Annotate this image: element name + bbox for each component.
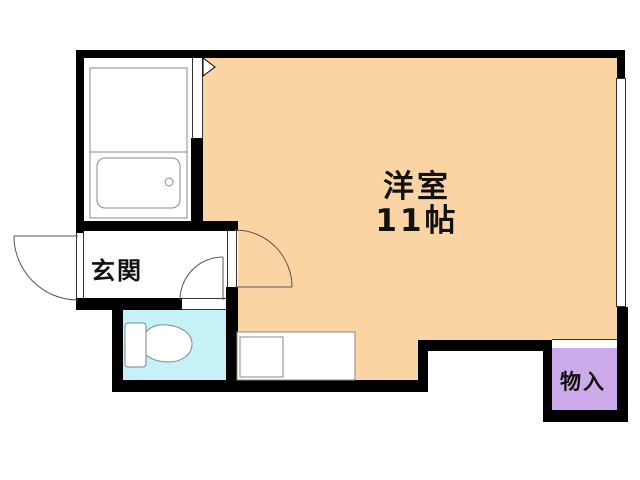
genkan-label: 玄関: [91, 251, 143, 286]
bathroom-door-marker-icon: [203, 58, 215, 76]
main-room-size: 11帖: [337, 204, 497, 238]
fixtures-layer: [0, 0, 640, 480]
toilet-door-arc: [180, 257, 223, 300]
kitchen-sink: [240, 337, 283, 377]
main-room-name: 洋室: [337, 170, 497, 204]
toilet-bowl: [146, 325, 192, 362]
storage-label: 物入: [560, 366, 606, 396]
entrance-door-arc: [14, 236, 78, 300]
main-door-arc: [235, 230, 292, 287]
bathtub-drain-icon: [165, 178, 173, 186]
floorplan: 洋室 11帖 玄関 物入: [0, 0, 640, 480]
toilet-tank: [125, 323, 146, 367]
main-room-label: 洋室 11帖: [337, 170, 497, 238]
